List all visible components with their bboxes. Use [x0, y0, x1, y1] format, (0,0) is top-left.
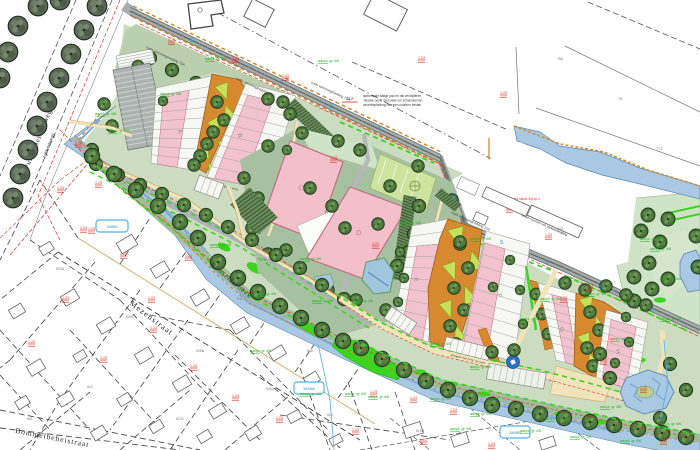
svg-text:1.23: 1.23 — [276, 416, 283, 420]
svg-text:aanpl. gr 4/6: aanpl. gr 4/6 — [600, 405, 621, 409]
svg-text:1.23: 1.23 — [545, 233, 552, 237]
svg-text:aanpl. gr 4/6: aanpl. gr 4/6 — [352, 299, 373, 303]
svg-text:612: 612 — [87, 385, 93, 389]
svg-text:aanpl. gr 4/6: aanpl. gr 4/6 — [345, 392, 366, 396]
svg-text:1.23: 1.23 — [660, 438, 667, 442]
svg-text:aanpl. gr 4/6: aanpl. gr 4/6 — [368, 395, 389, 399]
svg-text:1.23: 1.23 — [450, 408, 457, 412]
svg-text:aanpl. gr 4/6: aanpl. gr 4/6 — [250, 349, 271, 353]
svg-text:1.23: 1.23 — [62, 296, 69, 300]
svg-text:1.23: 1.23 — [330, 156, 337, 160]
svg-text:1.23: 1.23 — [57, 186, 64, 190]
svg-text:536A: 536A — [266, 387, 275, 391]
svg-text:aanpl. gr 4/6: aanpl. gr 4/6 — [620, 439, 641, 443]
svg-text:aanpl. gr 4/6: aanpl. gr 4/6 — [520, 317, 541, 321]
svg-text:1.23: 1.23 — [100, 356, 107, 360]
svg-text:601: 601 — [27, 417, 33, 421]
svg-text:aanpl. gr 4/6: aanpl. gr 4/6 — [470, 412, 491, 416]
svg-text:aanpl. gr 4/6: aanpl. gr 4/6 — [255, 292, 276, 296]
svg-text:76: 76 — [618, 97, 622, 101]
svg-text:535B: 535B — [196, 349, 205, 353]
svg-text:1.23: 1.23 — [185, 254, 192, 258]
svg-text:618: 618 — [327, 413, 333, 417]
svg-text:aanpl. gr 4/6: aanpl. gr 4/6 — [660, 277, 681, 281]
svg-text:aanpl. gr 4/6: aanpl. gr 4/6 — [450, 427, 471, 431]
svg-text:aanpl. gr 4/6: aanpl. gr 4/6 — [160, 92, 181, 96]
svg-text:aanpl. gr 4/6: aanpl. gr 4/6 — [108, 129, 129, 133]
svg-text:aanpl. gr 4/6: aanpl. gr 4/6 — [318, 59, 339, 63]
svg-text:1.23: 1.23 — [282, 74, 289, 78]
svg-text:aanpl. gr 4/6: aanpl. gr 4/6 — [430, 342, 451, 346]
svg-text:1.23: 1.23 — [75, 141, 82, 145]
svg-text:aanpl. gr 4/6: aanpl. gr 4/6 — [650, 247, 671, 251]
svg-text:aanpl. gr 4/6: aanpl. gr 4/6 — [95, 112, 116, 116]
svg-text:1.23: 1.23 — [372, 242, 379, 246]
svg-text:1.23: 1.23 — [120, 252, 127, 256]
svg-text:aanpl. gr 4/6: aanpl. gr 4/6 — [540, 297, 561, 301]
svg-text:1.23: 1.23 — [352, 428, 359, 432]
svg-text:77C: 77C — [657, 147, 664, 151]
svg-text:1.23: 1.23 — [420, 438, 427, 442]
svg-text:1.23: 1.23 — [410, 396, 417, 400]
svg-text:aanpl. gr 4/6: aanpl. gr 4/6 — [210, 243, 231, 247]
svg-text:133: 133 — [557, 227, 563, 231]
svg-text:1.23: 1.23 — [88, 227, 95, 231]
svg-text:aanpl. gr 4/6: aanpl. gr 4/6 — [400, 221, 421, 225]
svg-text:619B: 619B — [416, 429, 425, 433]
svg-text:1.23: 1.23 — [586, 284, 593, 288]
svg-text:1.23: 1.23 — [148, 296, 155, 300]
svg-text:1.23: 1.23 — [150, 326, 157, 330]
svg-text:1.23: 1.23 — [232, 394, 239, 398]
svg-text:aanpl. gr 4/6: aanpl. gr 4/6 — [545, 417, 566, 421]
svg-text:613C: 613C — [176, 417, 185, 421]
svg-text:aanpl. gr 4/6: aanpl. gr 4/6 — [520, 429, 541, 433]
svg-text:1.23: 1.23 — [370, 390, 377, 394]
svg-text:oeverbeplanting voorzien confo: oeverbeplanting voorzien conform bestek — [363, 103, 422, 107]
svg-text:1.23: 1.23 — [28, 340, 35, 344]
svg-text:541: 541 — [237, 297, 243, 301]
svg-text:1.23: 1.23 — [80, 226, 87, 230]
svg-text:533A: 533A — [56, 267, 65, 271]
svg-text:aanpl. gr 4/6: aanpl. gr 4/6 — [570, 435, 591, 439]
svg-text:nieuwe oever met palen en scha: nieuwe oever met palen en schanskorven — [364, 99, 423, 103]
svg-text:aanpl. gr 4/6: aanpl. gr 4/6 — [300, 392, 321, 396]
svg-text:1.23: 1.23 — [500, 91, 507, 95]
svg-text:1.23: 1.23 — [168, 38, 175, 42]
svg-text:1.23: 1.23 — [232, 56, 239, 60]
svg-text:aanpl. gr 4/6: aanpl. gr 4/6 — [430, 397, 451, 401]
svg-text:3495A: 3495A — [303, 386, 315, 391]
svg-text:aanpl. gr 4/6: aanpl. gr 4/6 — [470, 237, 491, 241]
svg-text:1.23: 1.23 — [488, 442, 495, 446]
svg-text:1.23: 1.23 — [190, 364, 197, 368]
svg-text:opmerende balkje pad en rail v: opmerende balkje pad en rail verwijderen — [363, 94, 422, 98]
svg-text:545: 545 — [307, 349, 313, 353]
svg-text:1.23: 1.23 — [640, 386, 647, 390]
svg-text:34950: 34950 — [106, 224, 118, 229]
svg-text:aanpl. gr 4/6: aanpl. gr 4/6 — [585, 292, 606, 296]
svg-text:534C: 534C — [126, 315, 135, 319]
svg-text:aanpl. gr 4/6: aanpl. gr 4/6 — [470, 365, 491, 369]
svg-text:aanpl. gr 4/6: aanpl. gr 4/6 — [205, 57, 226, 61]
svg-text:aanpl. gr 4/6: aanpl. gr 4/6 — [660, 317, 681, 321]
svg-text:aanpl. gr 4/6: aanpl. gr 4/6 — [300, 257, 321, 261]
svg-text:aanpl. gr 4/6: aanpl. gr 4/6 — [640, 237, 661, 241]
svg-text:aanpl. gr 4/6: aanpl. gr 4/6 — [610, 337, 631, 341]
svg-text:aanpl. gr 4/6: aanpl. gr 4/6 — [660, 422, 681, 426]
svg-text:1.23: 1.23 — [600, 358, 607, 362]
svg-text:aanpl. gr 4/6: aanpl. gr 4/6 — [312, 299, 333, 303]
svg-text:75A: 75A — [557, 57, 564, 61]
svg-text:1.23: 1.23 — [418, 56, 425, 60]
svg-text:1.23: 1.23 — [95, 181, 102, 185]
